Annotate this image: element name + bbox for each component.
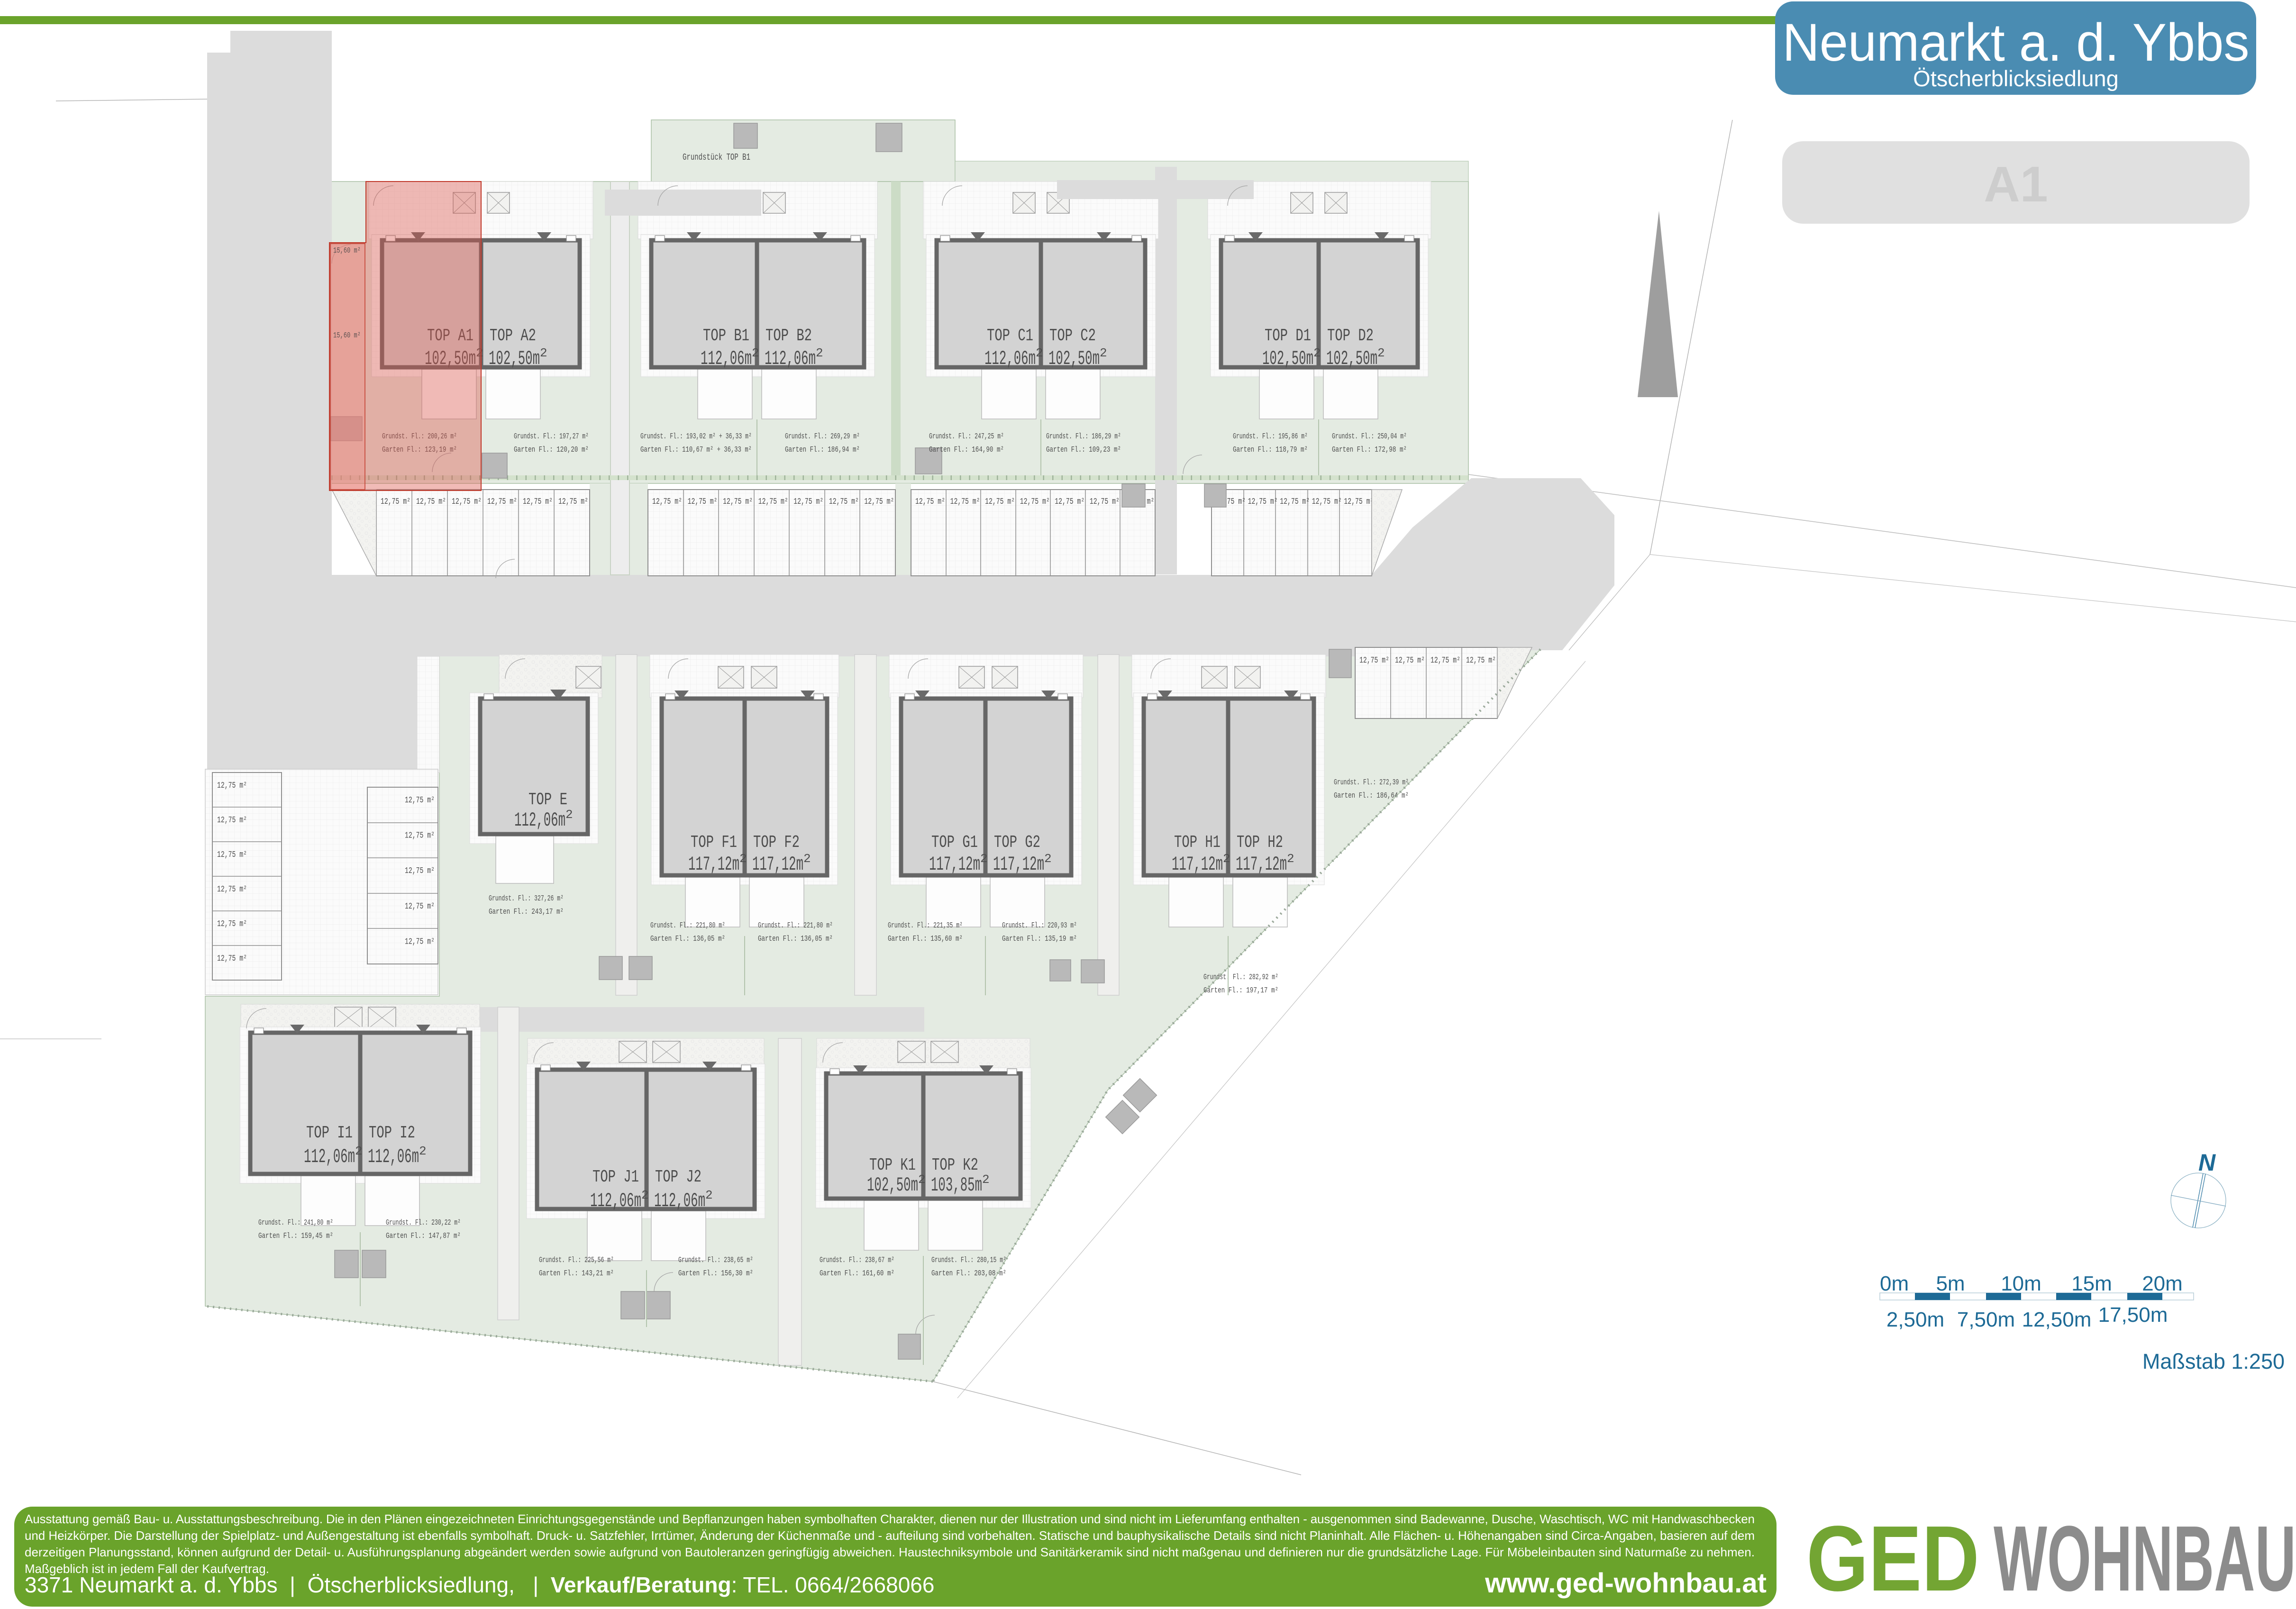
svg-text:Grundst. Fl.: 195,86 m²: Grundst. Fl.: 195,86 m² — [1233, 432, 1308, 441]
svg-text:15m: 15m — [2071, 1272, 2112, 1295]
svg-text:2,50m: 2,50m — [1886, 1308, 1944, 1331]
svg-text:A1: A1 — [1984, 156, 2048, 212]
svg-text:Garten Fl.: 159,45 m²: Garten Fl.: 159,45 m² — [258, 1232, 333, 1241]
svg-text:12,75 m²: 12,75 m² — [688, 497, 718, 507]
svg-text:12,75 m²: 12,75 m² — [1312, 497, 1342, 507]
svg-text:12,75 m²: 12,75 m² — [405, 937, 435, 946]
svg-text:TOP D2: TOP D2 — [1327, 326, 1374, 345]
svg-text:Grundst. Fl.: 241,80 m²: Grundst. Fl.: 241,80 m² — [258, 1218, 333, 1227]
svg-text:Garten Fl.: 197,17 m²: Garten Fl.: 197,17 m² — [1203, 986, 1278, 995]
svg-text:Garten Fl.: 143,21 m²: Garten Fl.: 143,21 m² — [539, 1269, 614, 1278]
svg-text:Grundst. Fl.: 186,29 m²: Grundst. Fl.: 186,29 m² — [1046, 432, 1121, 441]
svg-text:112,06m2: 112,06m2 — [765, 346, 823, 370]
svg-text:12,75 m²: 12,75 m² — [793, 497, 823, 507]
svg-text:TOP J2: TOP J2 — [655, 1167, 702, 1187]
svg-text:112,06m2: 112,06m2 — [590, 1188, 649, 1212]
svg-text:Ausstattung gemäß Bau- u. Auss: Ausstattung gemäß Bau- u. Ausstattungsbe… — [25, 1512, 1755, 1526]
svg-text:Garten Fl.: 120,20 m²: Garten Fl.: 120,20 m² — [514, 445, 589, 455]
svg-text:Grundst. Fl.: 221,80 m²: Grundst. Fl.: 221,80 m² — [758, 921, 833, 930]
svg-text:TOP F1: TOP F1 — [691, 833, 737, 852]
svg-text:12,75 m²: 12,75 m² — [1344, 497, 1374, 507]
svg-text:102,50m2: 102,50m2 — [1262, 346, 1321, 370]
svg-text:15,60 m²: 15,60 m² — [333, 246, 361, 255]
svg-text:GED: GED — [1806, 1507, 1979, 1609]
svg-text:117,12m2: 117,12m2 — [929, 852, 988, 876]
svg-text:TOP H1: TOP H1 — [1174, 833, 1221, 852]
svg-text:12,75 m²: 12,75 m² — [1280, 497, 1310, 507]
svg-text:12,75 m²: 12,75 m² — [523, 497, 553, 507]
svg-text:Grundst. Fl.: 197,27 m²: Grundst. Fl.: 197,27 m² — [514, 432, 589, 441]
svg-text:Garten Fl.: 136,05 m²: Garten Fl.: 136,05 m² — [650, 935, 725, 944]
svg-text:Garten Fl.: 203,08 m²: Garten Fl.: 203,08 m² — [931, 1269, 1006, 1278]
svg-text:TOP E: TOP E — [528, 790, 567, 809]
svg-text:TOP J1: TOP J1 — [592, 1167, 639, 1187]
svg-text:12,75 m²: 12,75 m² — [1020, 497, 1050, 507]
svg-text:Garten Fl.: 161,60 m²: Garten Fl.: 161,60 m² — [820, 1269, 894, 1278]
svg-text:WOHNBAU: WOHNBAU — [1994, 1507, 2296, 1609]
svg-text:www.ged-wohnbau.at: www.ged-wohnbau.at — [1485, 1568, 1767, 1599]
svg-text:Grundst. Fl.: 193,02 m² + 36,3: Grundst. Fl.: 193,02 m² + 36,33 m² — [640, 432, 752, 441]
svg-text:12,75 m²: 12,75 m² — [1248, 497, 1278, 507]
svg-text:TOP G1: TOP G1 — [931, 833, 978, 852]
svg-text:Garten Fl.: 164,90 m²: Garten Fl.: 164,90 m² — [929, 445, 1004, 455]
svg-text:117,12m2: 117,12m2 — [752, 852, 811, 876]
svg-text:12,75 m²: 12,75 m² — [381, 497, 410, 507]
svg-text:N: N — [2198, 1149, 2216, 1176]
svg-text:12,75 m²: 12,75 m² — [915, 497, 945, 507]
svg-text:TOP F2: TOP F2 — [753, 833, 800, 852]
svg-text:12,75 m²: 12,75 m² — [405, 902, 435, 911]
svg-text:TOP G2: TOP G2 — [994, 833, 1040, 852]
svg-text:TOP H2: TOP H2 — [1237, 833, 1283, 852]
svg-text:12,75 m²: 12,75 m² — [652, 497, 682, 507]
svg-text:12,75 m²: 12,75 m² — [1359, 656, 1389, 665]
svg-text:102,50m2: 102,50m2 — [1048, 346, 1107, 370]
svg-text:17,50m: 17,50m — [2098, 1303, 2168, 1327]
svg-text:12,75 m²: 12,75 m² — [1395, 656, 1425, 665]
svg-text:Grundst. Fl.: 230,22 m²: Grundst. Fl.: 230,22 m² — [386, 1218, 461, 1227]
svg-text:12,75 m²: 12,75 m² — [217, 816, 247, 825]
svg-text:20m: 20m — [2142, 1272, 2183, 1295]
svg-text:117,12m2: 117,12m2 — [1236, 852, 1294, 876]
svg-text:3371 Neumarkt a. d. Ybbs | Ö: 3371 Neumarkt a. d. Ybbs | Ötscherblicks… — [25, 1573, 934, 1597]
svg-text:12,75 m²: 12,75 m² — [416, 497, 446, 507]
svg-text:112,06m2: 112,06m2 — [701, 346, 759, 370]
svg-text:Garten Fl.: 109,23 m²: Garten Fl.: 109,23 m² — [1046, 445, 1121, 455]
svg-text:10m: 10m — [2001, 1272, 2041, 1295]
svg-text:12,75 m²: 12,75 m² — [985, 497, 1015, 507]
svg-text:12,75 m²: 12,75 m² — [558, 497, 588, 507]
svg-text:TOP C1: TOP C1 — [987, 326, 1033, 345]
svg-text:Garten Fl.: 172,98 m²: Garten Fl.: 172,98 m² — [1332, 445, 1407, 455]
svg-text:117,12m2: 117,12m2 — [688, 852, 747, 876]
svg-text:TOP I2: TOP I2 — [369, 1123, 415, 1143]
svg-text:Garten Fl.: 186,94 m²: Garten Fl.: 186,94 m² — [785, 445, 860, 455]
svg-text:TOP K1: TOP K1 — [869, 1155, 916, 1175]
svg-text:12,75 m²: 12,75 m² — [405, 796, 435, 805]
svg-text:12,75 m²: 12,75 m² — [950, 497, 980, 507]
svg-text:5m: 5m — [1936, 1272, 1965, 1295]
svg-text:TOP A2: TOP A2 — [490, 326, 536, 345]
svg-text:Grundst. Fl.: 225,56 m²: Grundst. Fl.: 225,56 m² — [539, 1256, 614, 1265]
svg-text:12,75 m²: 12,75 m² — [1466, 656, 1496, 665]
svg-text:12,75 m²: 12,75 m² — [217, 850, 247, 860]
svg-text:112,06m2: 112,06m2 — [368, 1144, 427, 1168]
svg-text:Grundst. Fl.: 221,35 m²: Grundst. Fl.: 221,35 m² — [888, 921, 963, 930]
svg-text:12,75 m²: 12,75 m² — [1090, 497, 1120, 507]
svg-text:12,75 m²: 12,75 m² — [864, 497, 894, 507]
svg-text:112,06m2: 112,06m2 — [984, 346, 1043, 370]
svg-text:TOP B2: TOP B2 — [765, 326, 812, 345]
svg-text:Grundst. Fl.: 250,04 m²: Grundst. Fl.: 250,04 m² — [1332, 432, 1407, 441]
svg-text:TOP C2: TOP C2 — [1049, 326, 1096, 345]
svg-text:103,85m2: 103,85m2 — [931, 1173, 990, 1197]
svg-text:Grundst. Fl.: 272,39 m²: Grundst. Fl.: 272,39 m² — [1334, 778, 1409, 787]
svg-text:112,06m2: 112,06m2 — [654, 1188, 713, 1212]
svg-text:0m: 0m — [1880, 1272, 1909, 1295]
svg-text:Grundst. Fl.: 282,92 m²: Grundst. Fl.: 282,92 m² — [1203, 973, 1278, 982]
svg-text:Garten Fl.: 110,67 m² + 36,33: Garten Fl.: 110,67 m² + 36,33 m² — [640, 445, 752, 455]
svg-text:Grundst. Fl.: 269,29 m²: Grundst. Fl.: 269,29 m² — [785, 432, 860, 441]
svg-text:Garten Fl.: 135,19 m²: Garten Fl.: 135,19 m² — [1002, 935, 1077, 944]
svg-text:Garten Fl.: 136,05 m²: Garten Fl.: 136,05 m² — [758, 935, 833, 944]
svg-text:und Heizkörper. Die Darstellun: und Heizkörper. Die Darstellung der Spie… — [25, 1528, 1755, 1543]
svg-text:112,06m2: 112,06m2 — [304, 1144, 363, 1168]
svg-text:117,12m2: 117,12m2 — [1172, 852, 1230, 876]
svg-text:12,75 m²: 12,75 m² — [723, 497, 753, 507]
svg-text:12,75 m²: 12,75 m² — [405, 866, 435, 876]
svg-text:Garten Fl.: 135,60 m²: Garten Fl.: 135,60 m² — [888, 935, 963, 944]
svg-text:Grundst. Fl.: 247,25 m²: Grundst. Fl.: 247,25 m² — [929, 432, 1004, 441]
svg-text:102,50m2: 102,50m2 — [489, 346, 547, 370]
svg-text:TOP I1: TOP I1 — [306, 1123, 353, 1143]
svg-text:derzeitigen Planungsstand, kön: derzeitigen Planungsstand, können aufgru… — [25, 1545, 1755, 1559]
svg-text:12,75 m²: 12,75 m² — [217, 919, 247, 929]
svg-text:15,60 m²: 15,60 m² — [333, 331, 361, 340]
svg-text:Grundst. Fl.: 327,26 m²: Grundst. Fl.: 327,26 m² — [489, 894, 564, 903]
svg-text:102,50m2: 102,50m2 — [867, 1173, 926, 1197]
svg-text:Garten Fl.: 147,87 m²: Garten Fl.: 147,87 m² — [386, 1232, 461, 1241]
svg-text:TOP B1: TOP B1 — [703, 326, 749, 345]
svg-text:102,50m2: 102,50m2 — [1326, 346, 1385, 370]
svg-text:Grundstück TOP B1: Grundstück TOP B1 — [683, 152, 750, 163]
svg-text:112,06m2: 112,06m2 — [514, 808, 573, 832]
svg-text:7,50m: 7,50m — [1957, 1308, 2015, 1331]
svg-text:TOP K2: TOP K2 — [932, 1155, 978, 1175]
svg-text:Neumarkt a. d. Ybbs: Neumarkt a. d. Ybbs — [1783, 13, 2250, 72]
svg-text:Ötscherblicksiedlung: Ötscherblicksiedlung — [1913, 66, 2119, 91]
svg-text:Grundst. Fl.: 220,93 m²: Grundst. Fl.: 220,93 m² — [1002, 921, 1077, 930]
svg-text:Grundst. Fl.: 221,80 m²: Grundst. Fl.: 221,80 m² — [650, 921, 725, 930]
svg-text:12,75 m²: 12,75 m² — [1430, 656, 1460, 665]
svg-text:12,75 m²: 12,75 m² — [758, 497, 788, 507]
svg-text:Garten Fl.: 118,79 m²: Garten Fl.: 118,79 m² — [1233, 445, 1308, 455]
svg-text:12,75 m²: 12,75 m² — [217, 954, 247, 964]
svg-text:12,75 m²: 12,75 m² — [487, 497, 517, 507]
svg-text:12,75 m²: 12,75 m² — [829, 497, 859, 507]
svg-text:12,75 m²: 12,75 m² — [217, 885, 247, 894]
svg-text:12,50m: 12,50m — [2022, 1308, 2092, 1331]
svg-text:Grundst. Fl.: 280,15 m²: Grundst. Fl.: 280,15 m² — [931, 1256, 1006, 1265]
svg-text:12,75 m²: 12,75 m² — [405, 831, 435, 841]
svg-text:12,75 m²: 12,75 m² — [217, 781, 247, 791]
svg-text:TOP D1: TOP D1 — [1265, 326, 1311, 345]
svg-text:Grundst. Fl.: 238,67 m²: Grundst. Fl.: 238,67 m² — [820, 1256, 894, 1265]
svg-text:Garten Fl.: 156,30 m²: Garten Fl.: 156,30 m² — [678, 1269, 753, 1278]
svg-text:12,75 m²: 12,75 m² — [1055, 497, 1084, 507]
svg-text:Grundst. Fl.: 238,65 m²: Grundst. Fl.: 238,65 m² — [678, 1256, 753, 1265]
svg-text:Maßstab 1:250: Maßstab 1:250 — [2142, 1349, 2285, 1373]
svg-text:Garten Fl.: 243,17 m²: Garten Fl.: 243,17 m² — [489, 908, 564, 917]
svg-text:117,12m2: 117,12m2 — [993, 852, 1052, 876]
svg-text:12,75 m²: 12,75 m² — [452, 497, 482, 507]
